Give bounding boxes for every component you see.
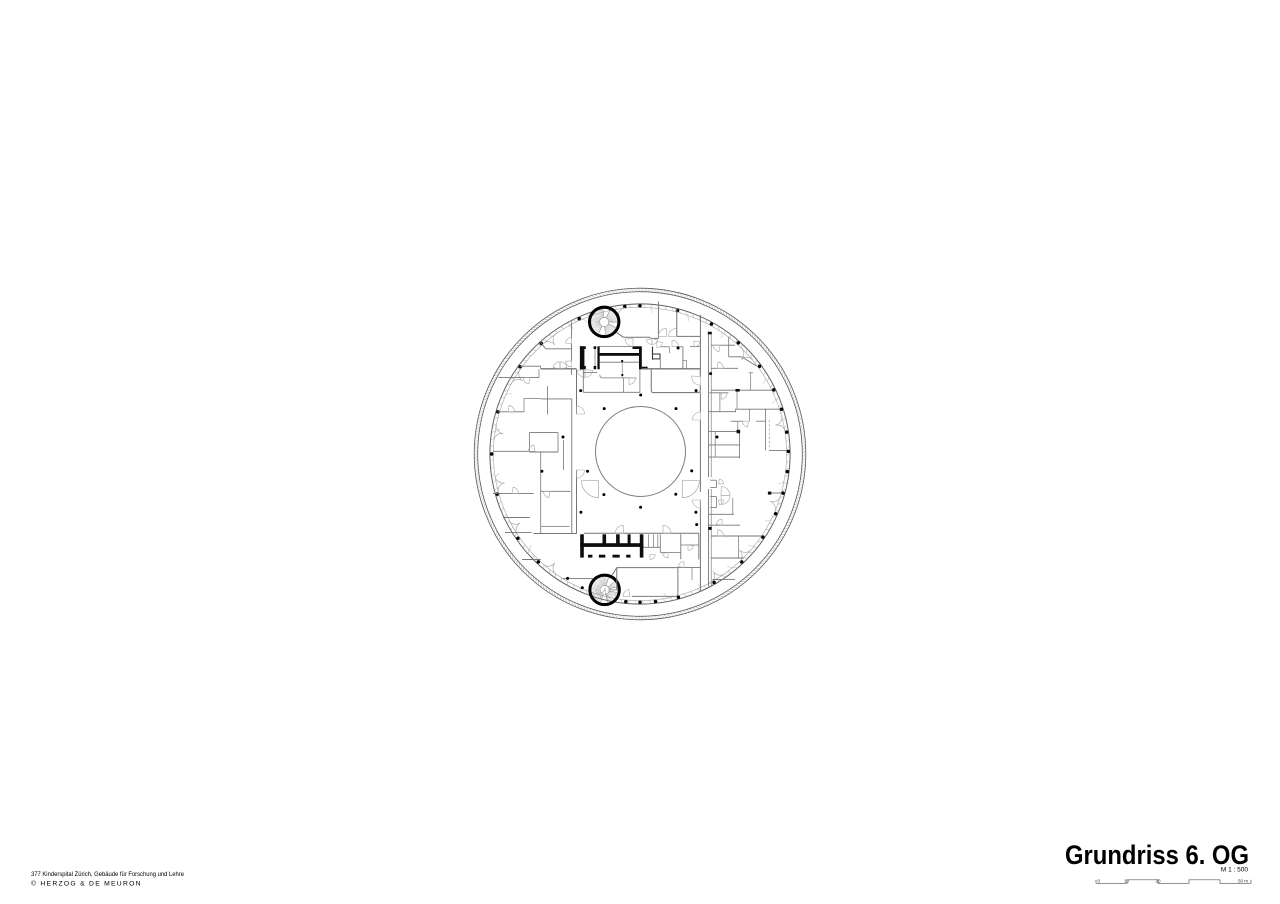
- svg-text:M 1 : 500: M 1 : 500: [1221, 867, 1248, 874]
- svg-text:50 m: 50 m: [1238, 878, 1248, 883]
- svg-text:Grundriss 6. OG: Grundriss 6. OG: [1065, 840, 1249, 870]
- svg-text:10: 10: [1124, 878, 1130, 883]
- svg-text:377 Kinderspital Zürich, Gebäu: 377 Kinderspital Zürich, Gebäude für For…: [31, 871, 185, 878]
- svg-text:0: 0: [1098, 878, 1101, 883]
- svg-text:© HERZOG & DE MEURON: © HERZOG & DE MEURON: [31, 879, 142, 887]
- svg-text:20: 20: [1156, 878, 1162, 883]
